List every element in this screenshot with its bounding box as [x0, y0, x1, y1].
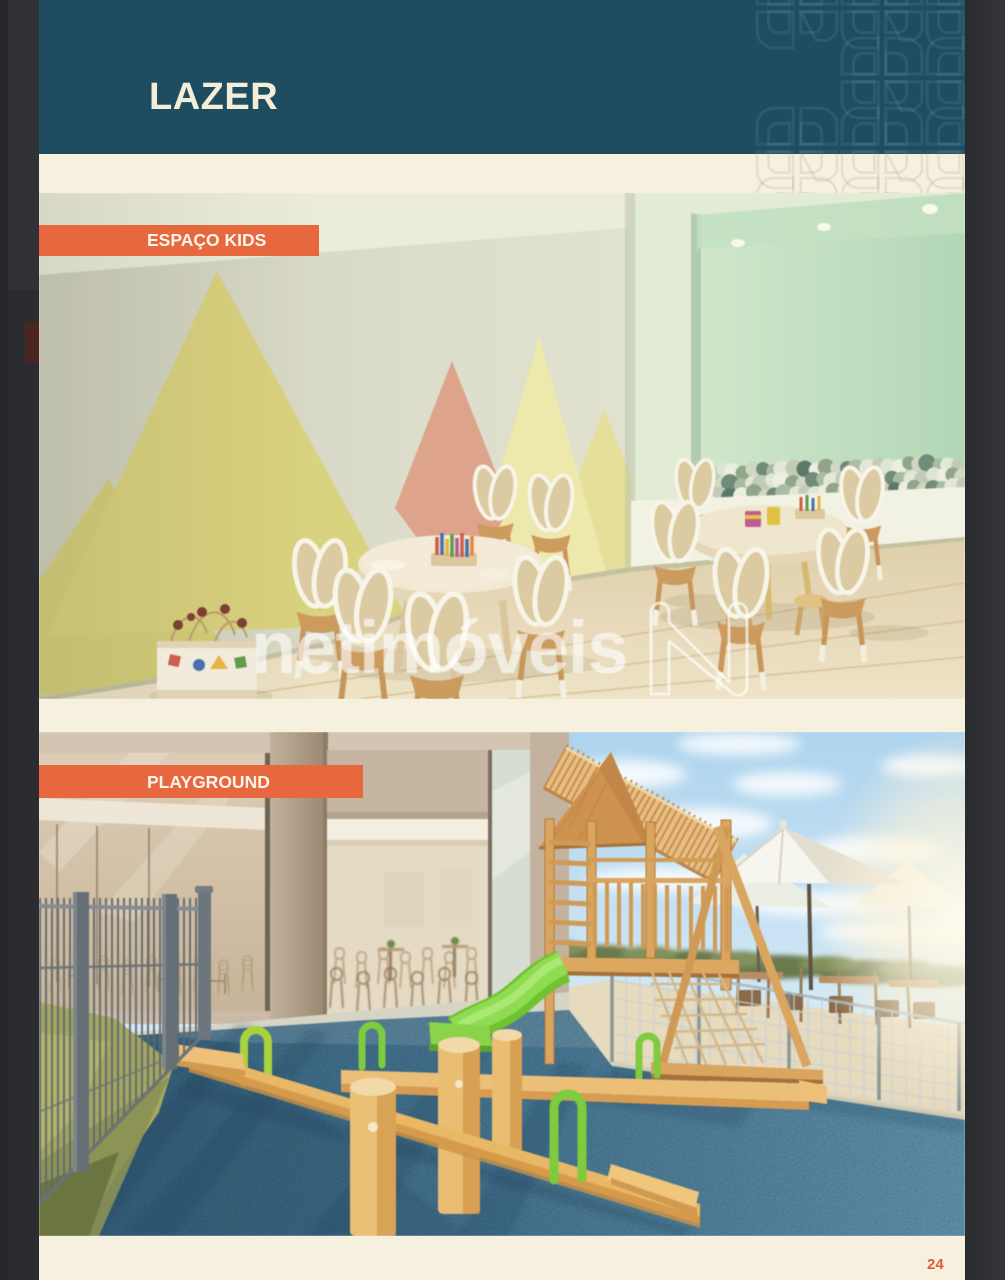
- svg-text:netimóveis: netimóveis: [251, 606, 628, 689]
